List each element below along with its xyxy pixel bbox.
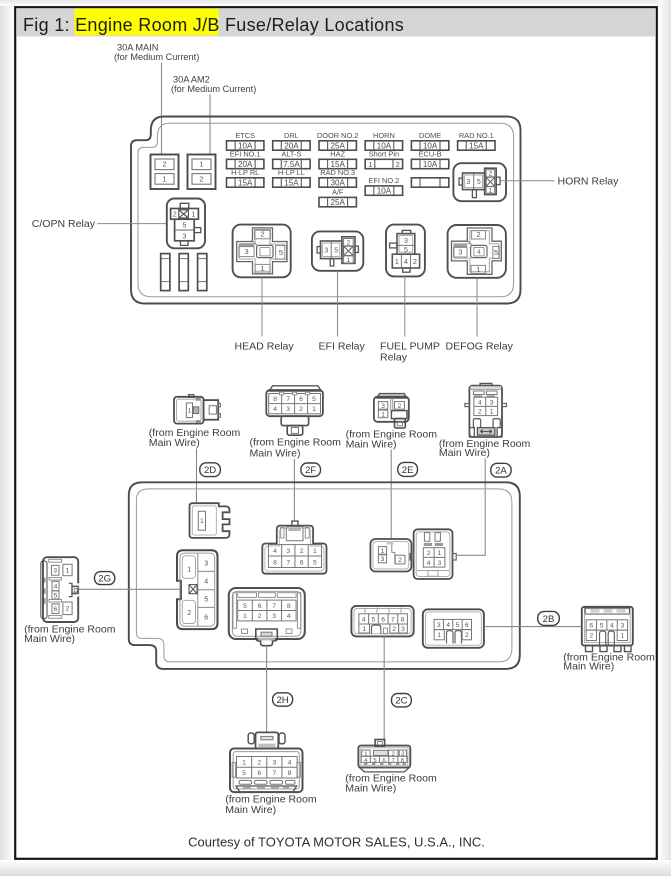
svg-text:5: 5 xyxy=(477,179,481,186)
svg-text:2D: 2D xyxy=(204,465,216,476)
svg-text:HORN: HORN xyxy=(373,131,395,140)
svg-text:2: 2 xyxy=(398,557,402,564)
svg-text:Main Wire): Main Wire) xyxy=(149,437,200,449)
svg-text:5: 5 xyxy=(279,248,283,257)
svg-text:1: 1 xyxy=(243,613,247,620)
svg-text:ALT-S: ALT-S xyxy=(281,149,301,158)
svg-text:6: 6 xyxy=(382,758,385,764)
svg-text:3: 3 xyxy=(437,622,441,629)
svg-text:2: 2 xyxy=(478,409,482,416)
svg-text:A/F: A/F xyxy=(332,187,344,196)
svg-text:DOME: DOME xyxy=(419,131,441,140)
svg-text:4: 4 xyxy=(54,583,58,590)
svg-text:6: 6 xyxy=(299,396,303,403)
svg-text:2: 2 xyxy=(392,626,396,633)
svg-text:2E: 2E xyxy=(402,465,414,476)
svg-text:8: 8 xyxy=(401,616,405,623)
svg-text:Fig 1: Engine Room J/B Fuse/Re: Fig 1: Engine Room J/B Fuse/Relay Locati… xyxy=(23,15,404,35)
svg-text:Main Wire): Main Wire) xyxy=(345,783,396,795)
svg-text:5: 5 xyxy=(494,248,498,257)
svg-text:EFI NO.1: EFI NO.1 xyxy=(230,149,261,158)
svg-text:6: 6 xyxy=(54,606,58,613)
svg-text:6: 6 xyxy=(300,559,304,566)
svg-text:5: 5 xyxy=(54,592,58,599)
svg-text:3: 3 xyxy=(438,560,442,567)
svg-text:1: 1 xyxy=(313,548,317,555)
svg-text:10A: 10A xyxy=(423,160,438,169)
svg-text:5: 5 xyxy=(243,603,247,610)
svg-text:3: 3 xyxy=(286,548,290,555)
svg-text:Main Wire): Main Wire) xyxy=(346,439,397,451)
svg-text:Main Wire): Main Wire) xyxy=(439,447,490,459)
svg-text:4: 4 xyxy=(204,579,208,586)
svg-text:Main Wire): Main Wire) xyxy=(563,661,614,673)
svg-text:4: 4 xyxy=(273,406,277,413)
svg-text:Main Wire): Main Wire) xyxy=(24,633,75,645)
svg-text:3: 3 xyxy=(53,568,57,575)
svg-text:5: 5 xyxy=(372,616,376,623)
svg-text:3: 3 xyxy=(272,613,276,620)
svg-text:4: 4 xyxy=(610,622,614,629)
svg-text:2: 2 xyxy=(489,171,493,178)
svg-text:8: 8 xyxy=(288,770,292,777)
svg-text:2: 2 xyxy=(173,212,177,219)
svg-text:1: 1 xyxy=(476,265,480,274)
svg-text:2: 2 xyxy=(347,240,351,247)
svg-text:1: 1 xyxy=(437,632,441,639)
svg-text:Main Wire): Main Wire) xyxy=(225,804,276,816)
svg-text:4: 4 xyxy=(427,560,431,567)
svg-text:1: 1 xyxy=(490,409,494,416)
svg-text:3: 3 xyxy=(286,406,290,413)
svg-text:4: 4 xyxy=(288,759,292,766)
svg-text:6: 6 xyxy=(257,770,261,777)
svg-text:1: 1 xyxy=(200,518,204,525)
svg-text:5: 5 xyxy=(600,622,604,629)
svg-text:4: 4 xyxy=(362,616,366,623)
svg-text:1: 1 xyxy=(191,212,195,219)
svg-text:2: 2 xyxy=(258,613,262,620)
svg-text:DRL: DRL xyxy=(284,131,299,140)
svg-text:7: 7 xyxy=(392,758,395,764)
svg-text:1: 1 xyxy=(199,160,203,169)
svg-text:2: 2 xyxy=(589,633,593,640)
svg-text:2: 2 xyxy=(199,174,203,183)
svg-text:3: 3 xyxy=(272,759,276,766)
svg-text:EFI Relay: EFI Relay xyxy=(319,341,366,353)
svg-text:15A: 15A xyxy=(469,141,484,150)
svg-text:4: 4 xyxy=(287,613,291,620)
svg-text:1: 1 xyxy=(368,160,372,169)
svg-text:8: 8 xyxy=(401,758,404,764)
svg-text:1: 1 xyxy=(362,626,366,633)
svg-text:6: 6 xyxy=(589,622,593,629)
svg-text:Short Pin: Short Pin xyxy=(369,149,399,158)
svg-text:7: 7 xyxy=(286,559,290,566)
svg-text:2: 2 xyxy=(162,160,166,169)
svg-text:DOOR NO.2: DOOR NO.2 xyxy=(317,131,358,140)
svg-text:5: 5 xyxy=(373,758,376,764)
svg-text:2: 2 xyxy=(299,406,303,413)
svg-text:3: 3 xyxy=(244,247,248,256)
svg-text:2: 2 xyxy=(257,759,261,766)
svg-text:3: 3 xyxy=(204,561,208,568)
svg-text:8: 8 xyxy=(273,559,277,566)
svg-text:ETCS: ETCS xyxy=(235,131,255,140)
svg-text:Relay: Relay xyxy=(380,351,408,363)
svg-text:3: 3 xyxy=(182,233,186,240)
svg-text:3: 3 xyxy=(381,403,385,410)
svg-text:Courtesy of TOYOTA MOTOR SALES: Courtesy of TOYOTA MOTOR SALES, U.S.A., … xyxy=(188,835,485,850)
svg-text:3: 3 xyxy=(490,399,494,406)
svg-text:2F: 2F xyxy=(305,465,316,476)
svg-text:4: 4 xyxy=(404,259,408,266)
svg-text:1: 1 xyxy=(162,174,166,183)
svg-text:C/OPN Relay: C/OPN Relay xyxy=(32,218,96,230)
svg-text:RAD NO.3: RAD NO.3 xyxy=(320,168,355,177)
svg-text:1: 1 xyxy=(261,264,265,273)
svg-text:5: 5 xyxy=(242,770,246,777)
svg-text:8: 8 xyxy=(273,396,277,403)
svg-text:5: 5 xyxy=(456,622,460,629)
svg-text:5: 5 xyxy=(334,248,338,255)
svg-text:1: 1 xyxy=(381,411,385,418)
svg-text:2H: 2H xyxy=(276,695,288,706)
svg-text:3: 3 xyxy=(404,238,408,245)
svg-text:2C: 2C xyxy=(395,696,407,707)
svg-text:HORN Relay: HORN Relay xyxy=(558,175,620,187)
svg-text:1: 1 xyxy=(188,408,192,415)
svg-text:3: 3 xyxy=(621,622,625,629)
svg-text:2: 2 xyxy=(476,230,480,239)
svg-text:1: 1 xyxy=(187,567,191,574)
svg-text:EFI NO.2: EFI NO.2 xyxy=(368,176,399,185)
svg-text:6: 6 xyxy=(465,622,469,629)
svg-text:ECU-B: ECU-B xyxy=(419,149,442,158)
svg-text:7: 7 xyxy=(272,603,276,610)
svg-text:10A: 10A xyxy=(377,187,392,196)
svg-text:(for Medium Current): (for Medium Current) xyxy=(114,52,199,62)
svg-text:2: 2 xyxy=(300,548,304,555)
svg-text:6: 6 xyxy=(204,615,208,622)
svg-text:1: 1 xyxy=(621,633,625,640)
svg-text:2: 2 xyxy=(413,259,417,266)
svg-text:4: 4 xyxy=(477,249,481,256)
svg-text:2: 2 xyxy=(66,606,70,613)
svg-text:Main Wire): Main Wire) xyxy=(250,447,301,459)
svg-text:2: 2 xyxy=(396,160,400,169)
svg-text:4: 4 xyxy=(478,399,482,406)
svg-text:HAZ: HAZ xyxy=(330,149,345,158)
svg-text:RAD NO.1: RAD NO.1 xyxy=(459,131,494,140)
svg-text:1: 1 xyxy=(381,548,385,555)
svg-text:DEFOG Relay: DEFOG Relay xyxy=(446,341,514,353)
svg-text:7: 7 xyxy=(391,616,395,623)
svg-text:2G: 2G xyxy=(98,574,111,585)
svg-text:25A: 25A xyxy=(330,198,345,207)
svg-text:15A: 15A xyxy=(238,178,253,187)
svg-text:6: 6 xyxy=(381,616,385,623)
svg-text:1: 1 xyxy=(347,257,351,264)
svg-text:7: 7 xyxy=(272,770,276,777)
svg-text:1: 1 xyxy=(395,259,399,266)
svg-text:15A: 15A xyxy=(284,178,299,187)
svg-text:1: 1 xyxy=(66,567,70,574)
svg-text:5: 5 xyxy=(204,597,208,604)
svg-text:6: 6 xyxy=(258,603,262,610)
svg-text:1: 1 xyxy=(312,406,316,413)
svg-text:H-LP LL: H-LP LL xyxy=(278,168,305,177)
svg-text:2B: 2B xyxy=(543,614,555,625)
svg-text:30A: 30A xyxy=(330,178,345,187)
svg-text:3: 3 xyxy=(467,179,471,186)
svg-text:7: 7 xyxy=(286,396,290,403)
svg-text:4: 4 xyxy=(273,548,277,555)
svg-text:5: 5 xyxy=(404,247,408,254)
svg-text:2: 2 xyxy=(260,230,264,239)
svg-text:3: 3 xyxy=(458,248,462,257)
svg-text:5: 5 xyxy=(312,396,316,403)
svg-text:2A: 2A xyxy=(495,466,507,477)
svg-text:2: 2 xyxy=(427,550,431,557)
svg-text:5: 5 xyxy=(182,223,186,230)
svg-text:HEAD Relay: HEAD Relay xyxy=(235,341,295,353)
svg-text:3: 3 xyxy=(381,556,385,563)
svg-text:4: 4 xyxy=(446,622,450,629)
svg-text:5: 5 xyxy=(313,559,317,566)
svg-text:1: 1 xyxy=(489,187,493,194)
svg-text:3: 3 xyxy=(324,248,328,255)
svg-text:2: 2 xyxy=(465,632,469,639)
svg-text:2: 2 xyxy=(187,610,191,617)
svg-text:1: 1 xyxy=(438,550,442,557)
svg-text:2: 2 xyxy=(398,403,402,410)
svg-text:H-LP RL: H-LP RL xyxy=(231,168,259,177)
svg-text:3: 3 xyxy=(401,626,405,633)
svg-text:8: 8 xyxy=(287,603,291,610)
svg-text:1: 1 xyxy=(242,759,246,766)
svg-text:(for Medium Current): (for Medium Current) xyxy=(171,84,256,94)
